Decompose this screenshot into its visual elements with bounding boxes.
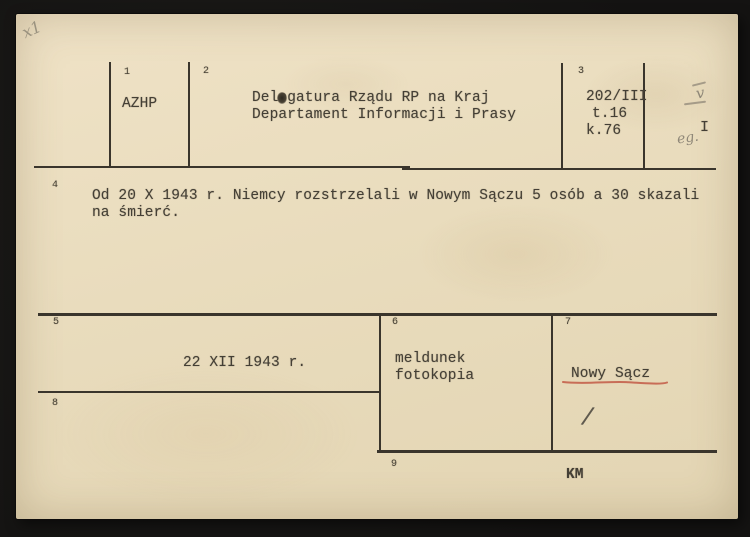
field9-number: 9 bbox=[391, 460, 397, 470]
rule-vertical-field2-left bbox=[188, 62, 190, 168]
field3-number: 3 bbox=[578, 67, 584, 77]
rule-vertical-field6-left bbox=[379, 313, 381, 452]
reference-card: k.76 bbox=[586, 123, 621, 140]
field6-number: 6 bbox=[392, 318, 398, 328]
rule-horizontal-top-right bbox=[402, 168, 716, 170]
red-pencil-underline bbox=[562, 378, 668, 387]
description-line2: na śmierć. bbox=[92, 205, 180, 222]
field2-number: 2 bbox=[203, 67, 209, 77]
typed-copy-numeral: I bbox=[700, 119, 709, 136]
rule-horizontal-field5-bottom bbox=[38, 391, 381, 393]
rule-vertical-field3-right bbox=[643, 63, 645, 168]
rule-horizontal-row567-top bbox=[38, 313, 717, 316]
field4-number: 4 bbox=[52, 181, 58, 191]
rule-vertical-field7-left bbox=[551, 313, 553, 452]
institution-line2: Departament Informacji i Prasy bbox=[252, 107, 516, 124]
rule-horizontal-top-left bbox=[34, 166, 410, 168]
document-date: 22 XII 1943 r. bbox=[183, 355, 306, 372]
description-line1: Od 20 X 1943 r. Niemcy rozstrzelali w No… bbox=[92, 188, 699, 205]
pencil-note-eg: eg. bbox=[676, 129, 700, 148]
cataloguer-initials: KM bbox=[566, 467, 584, 484]
field7-number: 7 bbox=[565, 318, 571, 328]
pencil-slash-mark: / bbox=[579, 403, 597, 433]
field5-number: 5 bbox=[53, 318, 59, 328]
rule-vertical-field3-left bbox=[561, 63, 563, 168]
typewriter-ink-blot bbox=[277, 92, 287, 104]
document-type-line2: fotokopia bbox=[395, 368, 474, 385]
reference-fond: 202/III bbox=[586, 89, 648, 106]
field8-number: 8 bbox=[52, 399, 58, 409]
rule-vertical-field1-left bbox=[109, 62, 111, 168]
reference-volume: t.16 bbox=[592, 106, 627, 123]
institution-line1: Delegatura Rządu RP na Kraj bbox=[252, 90, 490, 107]
archive-abbreviation: AZHP bbox=[122, 96, 157, 113]
document-type-line1: meldunek bbox=[395, 351, 465, 368]
scanned-card-photo: x1 1 2 3 4 5 6 7 8 9 AZHP Delegatura Rzą… bbox=[0, 0, 750, 537]
rule-horizontal-field67-bottom bbox=[377, 450, 717, 453]
field1-number: 1 bbox=[124, 68, 130, 78]
